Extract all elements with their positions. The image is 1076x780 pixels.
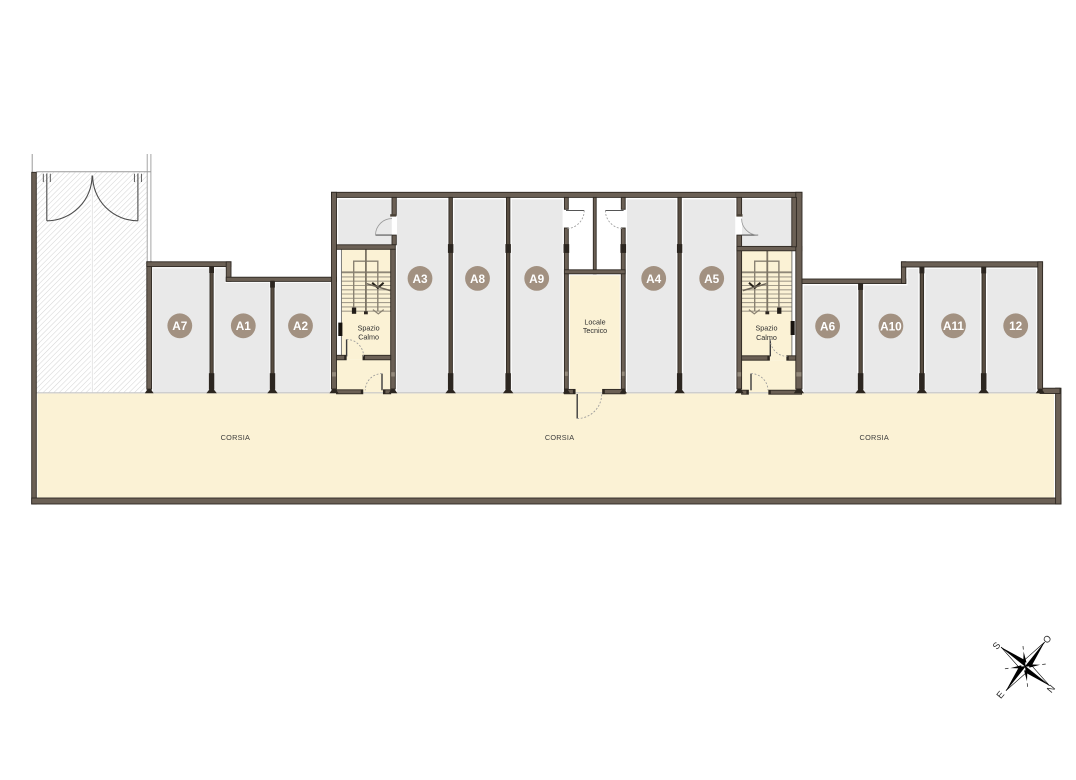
svg-text:A1: A1 — [236, 319, 252, 333]
svg-text:A2: A2 — [293, 319, 309, 333]
svg-text:CORSIA: CORSIA — [860, 433, 889, 442]
svg-text:A11: A11 — [943, 319, 964, 333]
svg-text:A3: A3 — [412, 272, 428, 286]
svg-text:A7: A7 — [172, 319, 188, 333]
svg-text:CORSIA: CORSIA — [221, 433, 250, 442]
svg-text:A9: A9 — [529, 272, 545, 286]
svg-text:A8: A8 — [470, 272, 486, 286]
svg-text:A10: A10 — [880, 319, 902, 333]
svg-text:Calmo: Calmo — [756, 333, 777, 342]
svg-text:Spazio: Spazio — [358, 323, 380, 332]
svg-text:Calmo: Calmo — [358, 333, 379, 342]
svg-text:A6: A6 — [820, 319, 836, 333]
svg-text:12: 12 — [1009, 319, 1023, 333]
svg-text:A5: A5 — [704, 272, 720, 286]
svg-text:Spazio: Spazio — [756, 323, 778, 332]
svg-text:A4: A4 — [646, 272, 662, 286]
svg-text:Tecnico: Tecnico — [583, 326, 607, 335]
svg-text:CORSIA: CORSIA — [545, 433, 574, 442]
